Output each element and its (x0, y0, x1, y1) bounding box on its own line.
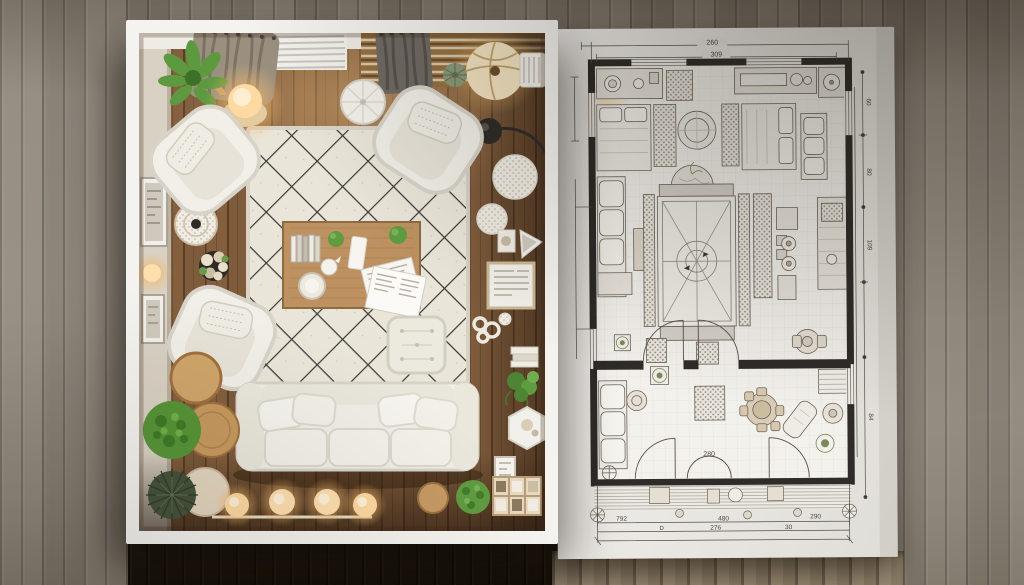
plan-console-topleft (596, 68, 662, 98)
curtain-right (375, 33, 433, 95)
seat-cushion (329, 429, 389, 466)
plan-floor-lamp (602, 466, 616, 480)
plan-window-blind-bottom-right (819, 369, 849, 393)
table-plant-1 (328, 231, 344, 247)
dimension-label-right-1: 60 (865, 98, 872, 106)
wood-stool (171, 353, 221, 403)
plan-dimensions-right (854, 70, 869, 498)
round-side-table (341, 80, 385, 124)
room-interior (139, 33, 545, 531)
plan-runner-right (753, 194, 772, 298)
dimension-label-bottom-4: D (659, 526, 664, 532)
dimension-label-right-2: 80 (865, 168, 872, 176)
bowls (299, 273, 325, 299)
dimension-label-top-2: 309 (710, 52, 722, 59)
dimension-label-right-4: 84 (867, 413, 874, 421)
shadow-floor-under-photo (128, 538, 564, 585)
decor-sphere-large (493, 155, 537, 199)
plan-center-rug (643, 184, 750, 341)
dimension-label-bottom-2: 480 (718, 515, 729, 522)
sofa (233, 383, 483, 489)
mini-sphere (499, 313, 511, 325)
seat-cushion (391, 429, 451, 466)
hexagon-side-table (509, 407, 545, 449)
plan-round-table-top (678, 111, 716, 149)
dimension-label-bottom-1: 792 (616, 516, 627, 523)
dimension-label-bottom-3: 290 (810, 513, 821, 520)
cube-shelf-unit (493, 477, 541, 515)
plan-runner-mid (722, 104, 739, 166)
plan-sofa-right-wall (801, 113, 827, 179)
picture-frame-2 (142, 295, 164, 343)
scene-background-wood-panel-wall: 280 260 309 (0, 0, 1024, 585)
sketch-board (488, 263, 534, 308)
flower-pot (199, 251, 229, 281)
table-plant-2 (389, 226, 407, 244)
floor-plan-drawing: 280 260 309 (554, 27, 898, 559)
plan-sofa-bottom-left (599, 381, 628, 469)
dimension-label-bottom-5: 276 (710, 525, 721, 532)
wood-disc (418, 483, 448, 513)
plan-plant-bottom (651, 366, 669, 384)
plan-doormat-1 (646, 338, 666, 362)
book-stack-right (511, 347, 538, 367)
plan-daybed-right (742, 104, 796, 170)
plan-runner-left (654, 104, 676, 166)
room-photo-frame (126, 20, 558, 544)
plan-cabinet-topright (818, 67, 845, 97)
plan-rug-bottom (695, 386, 725, 420)
dimension-label-top-1: 260 (706, 40, 718, 47)
seat-cushion (265, 429, 327, 466)
dimension-label-right-3: 109 (866, 240, 873, 251)
cactus-pot (443, 63, 467, 87)
plan-door-dimension-label: 280 (703, 451, 715, 458)
plan-console-topright (734, 67, 816, 94)
plan-wall-unit-right (817, 197, 847, 289)
coffee-table (283, 222, 427, 318)
square-frame-decor (498, 230, 515, 252)
plan-doormat-2 (696, 342, 718, 364)
floor-plan-paper: 280 260 309 (554, 27, 898, 559)
plant-bottom-right (456, 480, 490, 514)
plan-mat-top (666, 70, 692, 100)
paper-edge-shade (876, 27, 898, 557)
picture-frame-1 (141, 178, 167, 246)
plan-stool (627, 391, 647, 411)
books-row (291, 235, 320, 262)
ottoman (388, 317, 445, 373)
plan-plant-mid-left (614, 335, 630, 351)
dimension-label-bottom-6: 30 (785, 524, 793, 531)
plan-daybed-left (597, 105, 651, 171)
bush-plant (143, 401, 201, 459)
